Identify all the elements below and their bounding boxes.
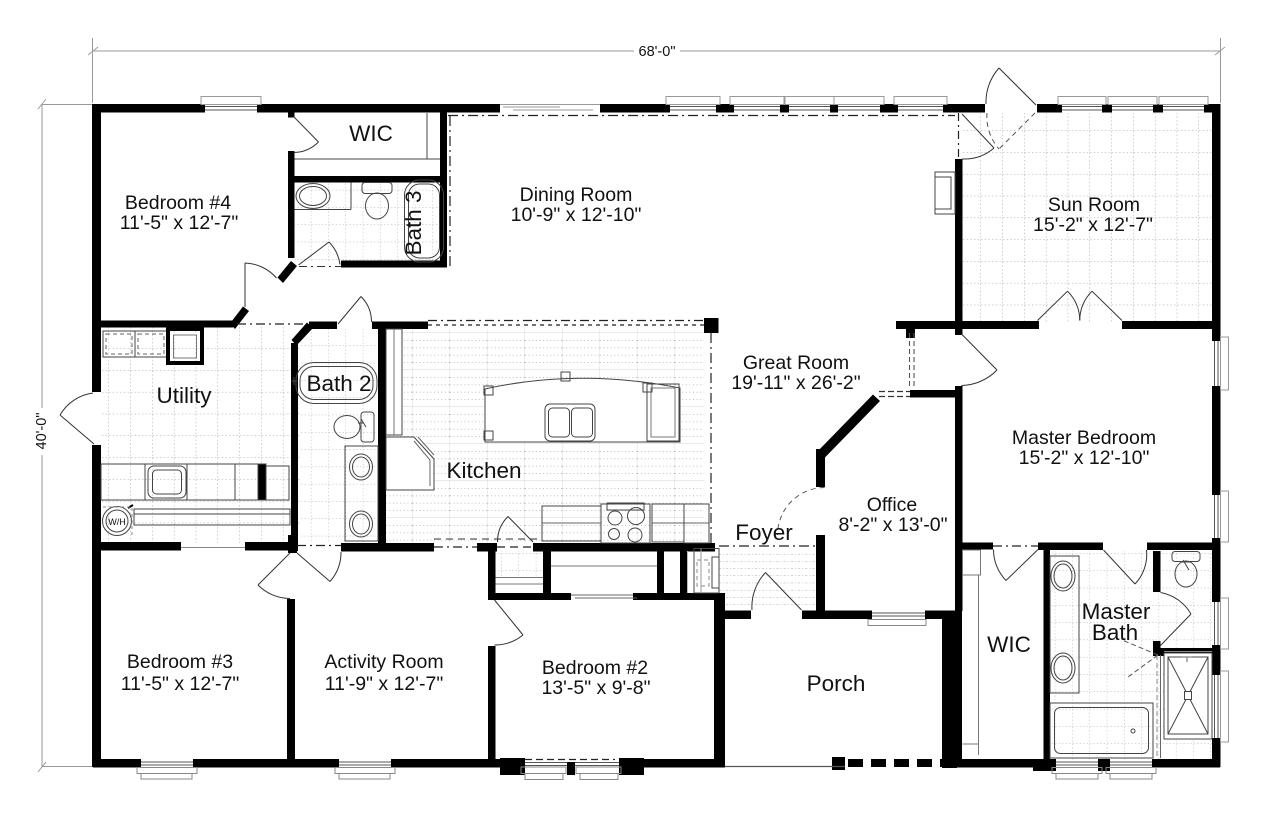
svg-text:Bedroom #2: Bedroom #2 xyxy=(542,657,648,679)
svg-text:Great Room: Great Room xyxy=(743,352,849,374)
svg-text:Kitchen: Kitchen xyxy=(446,458,521,483)
svg-text:Porch: Porch xyxy=(807,671,866,696)
svg-text:11'-5" x 12'-7": 11'-5" x 12'-7" xyxy=(121,673,240,695)
svg-text:Foyer: Foyer xyxy=(735,520,793,545)
svg-text:40'-0": 40'-0" xyxy=(34,413,50,450)
svg-text:Office: Office xyxy=(867,494,918,516)
svg-text:Bath: Bath xyxy=(1092,620,1138,645)
svg-text:Activity Room: Activity Room xyxy=(324,651,443,673)
svg-text:Dining Room: Dining Room xyxy=(520,184,633,206)
svg-text:8'-2" x 13'-0": 8'-2" x 13'-0" xyxy=(838,514,947,536)
svg-text:15'-2" x 12'-7": 15'-2" x 12'-7" xyxy=(1033,214,1153,236)
svg-text:Utility: Utility xyxy=(157,383,213,408)
svg-text:Bath 2: Bath 2 xyxy=(306,371,371,396)
svg-text:19'-11" x 26'-2": 19'-11" x 26'-2" xyxy=(731,372,860,394)
svg-text:11'-9" x 12'-7": 11'-9" x 12'-7" xyxy=(325,673,444,695)
svg-text:Master Bedroom: Master Bedroom xyxy=(1012,427,1156,449)
svg-text:15'-2" x 12'-10": 15'-2" x 12'-10" xyxy=(1019,447,1150,469)
svg-text:Bath 3: Bath 3 xyxy=(401,190,426,255)
svg-text:68'-0": 68'-0" xyxy=(639,44,676,60)
svg-text:Bedroom #4: Bedroom #4 xyxy=(125,192,231,214)
svg-text:W/H: W/H xyxy=(108,517,126,527)
svg-text:WIC: WIC xyxy=(987,632,1031,657)
svg-text:10'-9" x 12'-10": 10'-9" x 12'-10" xyxy=(511,204,642,226)
svg-text:11'-5" x 12'-7": 11'-5" x 12'-7" xyxy=(120,212,239,234)
svg-text:Bedroom #3: Bedroom #3 xyxy=(127,651,233,673)
svg-text:13'-5" x 9'-8": 13'-5" x 9'-8" xyxy=(541,677,650,699)
svg-text:WIC: WIC xyxy=(349,121,393,146)
svg-text:Sun Room: Sun Room xyxy=(1048,194,1140,216)
